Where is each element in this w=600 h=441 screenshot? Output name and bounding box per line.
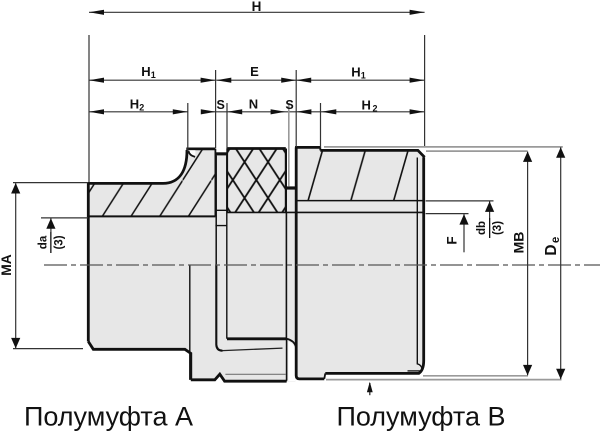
svg-text:db: db bbox=[476, 221, 488, 235]
svg-text:da: da bbox=[37, 235, 49, 249]
svg-text:MB: MB bbox=[511, 232, 527, 254]
svg-text:S: S bbox=[217, 98, 225, 112]
svg-text:(3): (3) bbox=[492, 221, 504, 235]
svg-text:N: N bbox=[249, 97, 258, 112]
svg-text:S: S bbox=[285, 98, 293, 112]
svg-text:MA: MA bbox=[0, 254, 14, 275]
svg-text:F: F bbox=[445, 236, 460, 244]
svg-text:Полумуфта B: Полумуфта B bbox=[336, 402, 505, 432]
svg-text:E: E bbox=[250, 64, 259, 79]
svg-text:H: H bbox=[252, 0, 262, 14]
svg-text:Полумуфта A: Полумуфта A bbox=[24, 402, 193, 432]
svg-text:(3): (3) bbox=[53, 235, 65, 249]
